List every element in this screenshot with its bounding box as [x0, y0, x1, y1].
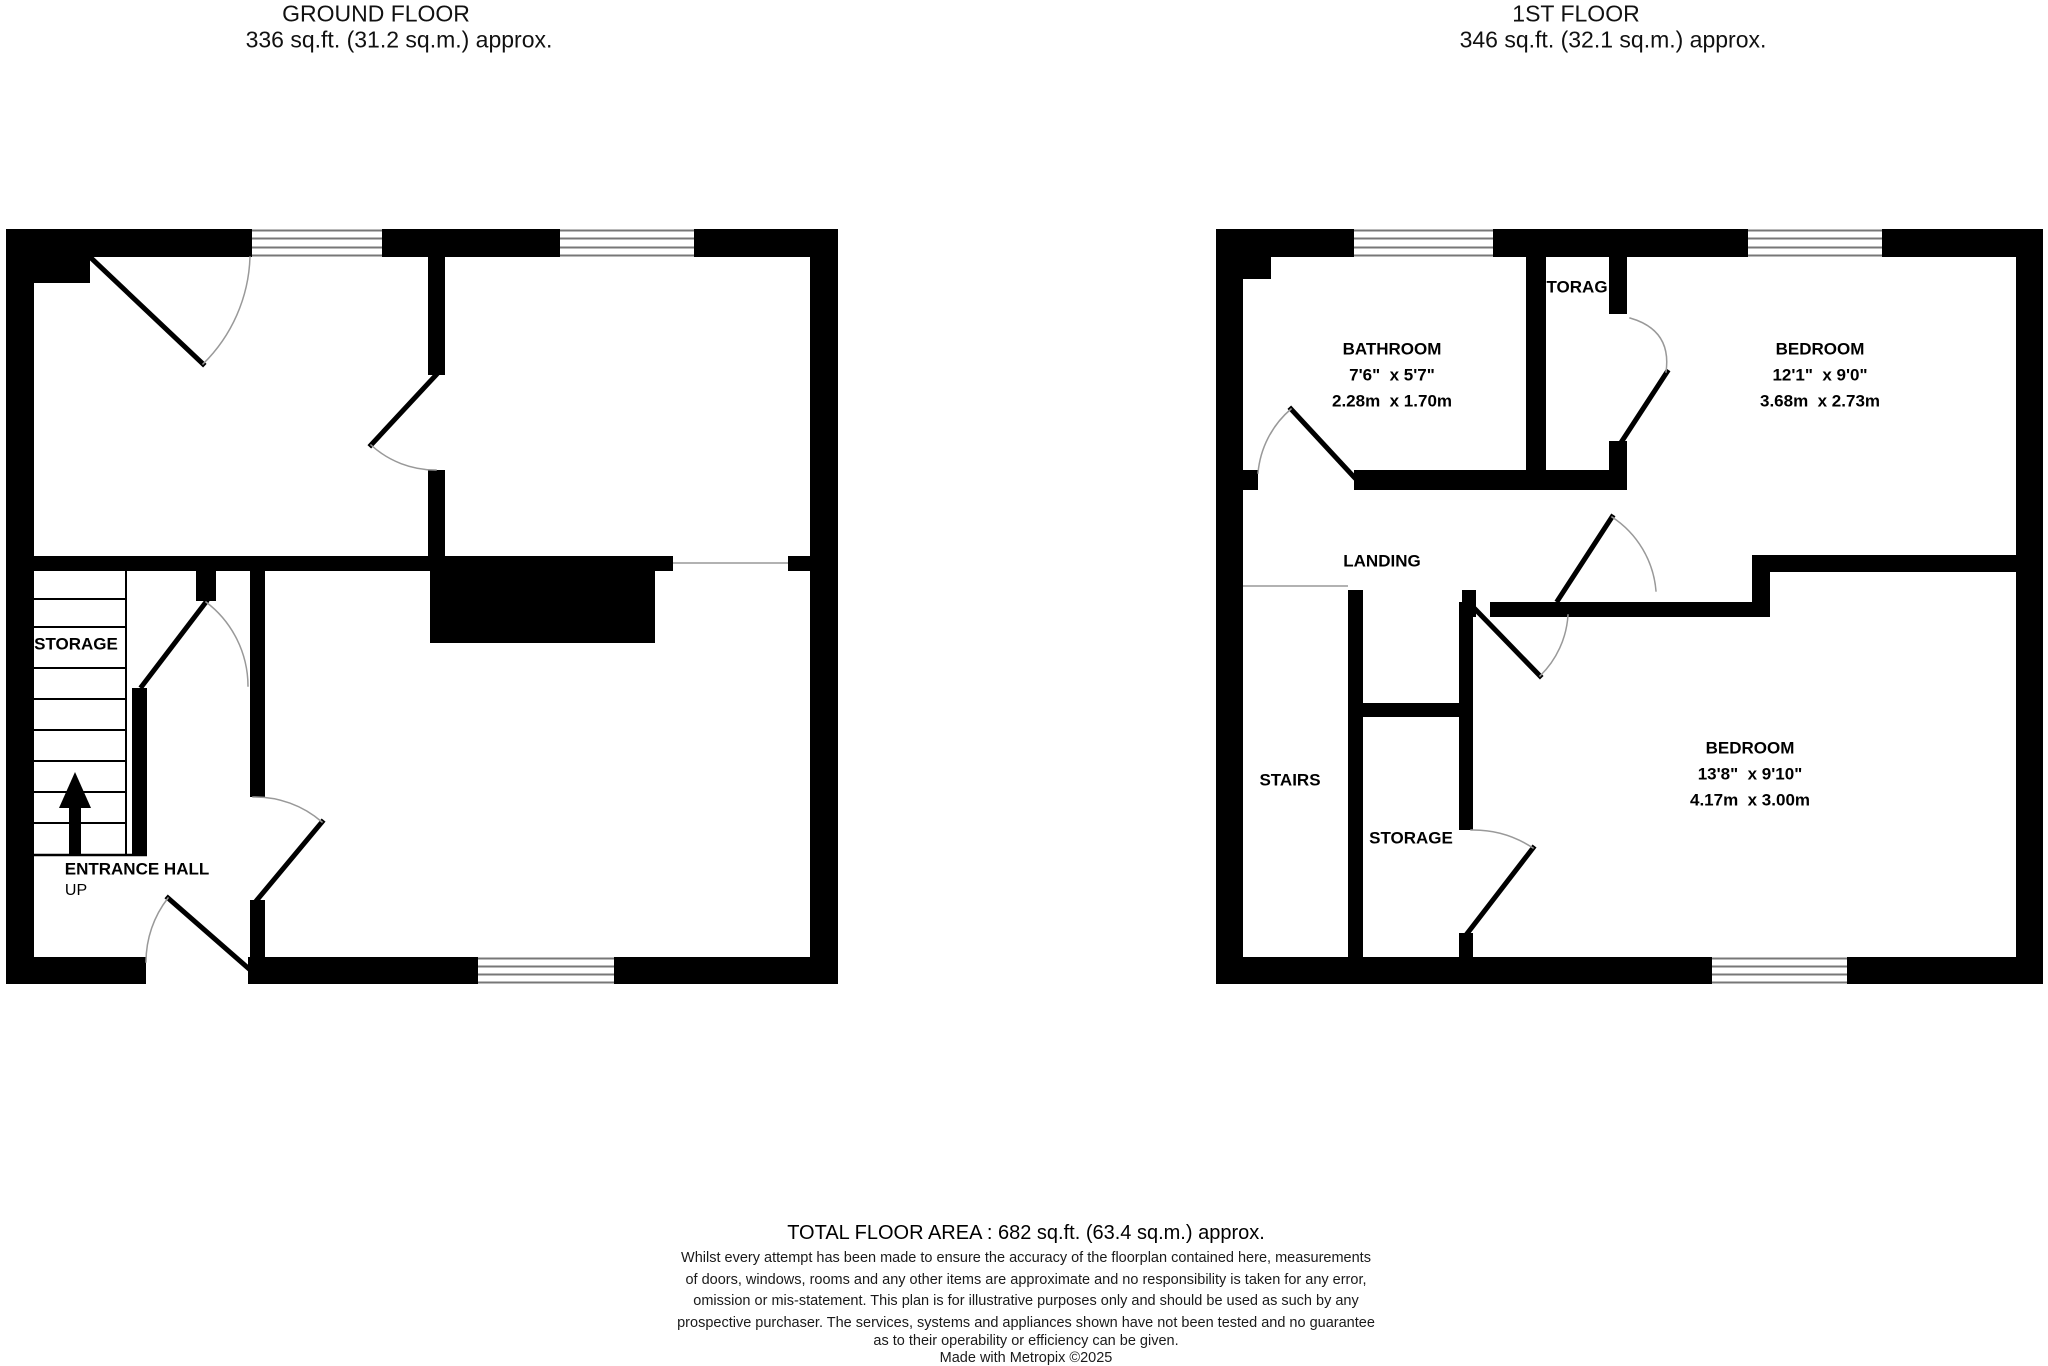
- ff-bedroom1-size-imperial: 12'1" x 9'0": [1772, 367, 1867, 384]
- ff-bedroom1-size-metric: 3.68m x 2.73m: [1760, 393, 1880, 410]
- ff-landing-label: LANDING: [1343, 553, 1420, 570]
- gf-room-divider-door: [371, 375, 436, 470]
- made-with-credit: Made with Metropix ©2025: [940, 1351, 1113, 1366]
- gf-hall-living-door: [253, 797, 322, 900]
- gf-chimney-breast: [430, 571, 655, 643]
- ff-window-top-right: [1748, 229, 1882, 257]
- gf-window-top-left: [252, 229, 382, 257]
- ff-storage-top-label: TORAG: [1546, 279, 1607, 296]
- gf-front-top-left-door: [90, 257, 250, 364]
- up-arrow-icon: [59, 772, 91, 855]
- ff-bathroom-door: [1258, 409, 1354, 477]
- ff-bedroom2-size-imperial: 13'8" x 9'10": [1698, 766, 1803, 783]
- disclaimer-line-1: Whilst every attempt has been made to en…: [681, 1251, 1371, 1266]
- ff-bedroom1-name: BEDROOM: [1776, 341, 1865, 358]
- gf-understairs-storage-door: [142, 602, 248, 686]
- ff-bathroom-size-metric: 2.28m x 1.70m: [1332, 393, 1452, 410]
- ff-bedroom2-size-metric: 4.17m x 3.00m: [1690, 792, 1810, 809]
- ff-window-top-left: [1354, 229, 1493, 257]
- gf-subtitle: 336 sq.ft. (31.2 sq.m.) approx.: [246, 29, 553, 52]
- total-floor-area: TOTAL FLOOR AREA : 682 sq.ft. (63.4 sq.m…: [787, 1223, 1265, 1243]
- gf-front-entrance-door: [146, 898, 248, 968]
- ff-interior-walls: [1238, 257, 2016, 957]
- floorplan-drawing: [0, 0, 2048, 1366]
- gf-stairs: [34, 571, 147, 855]
- ff-title: 1ST FLOOR: [1512, 3, 1639, 26]
- gf-title: GROUND FLOOR: [282, 3, 470, 26]
- gf-window-bottom: [478, 957, 614, 984]
- disclaimer-line-5: as to their operability or efficiency ca…: [873, 1334, 1178, 1349]
- ff-stairs-label: STAIRS: [1259, 772, 1320, 789]
- ff-bathroom-name: BATHROOM: [1343, 341, 1442, 358]
- gf-entrance-hall-label: ENTRANCE HALL: [65, 861, 210, 878]
- gf-window-top-right: [560, 229, 694, 257]
- ff-bedroom2-name: BEDROOM: [1706, 740, 1795, 757]
- floorplan-page: GROUND FLOOR 336 sq.ft. (31.2 sq.m.) app…: [0, 0, 2048, 1366]
- ff-bedroom2-door: [1476, 610, 1568, 676]
- ff-bedroom1-door: [1558, 517, 1656, 600]
- ff-subtitle: 346 sq.ft. (32.1 sq.m.) approx.: [1460, 29, 1767, 52]
- ff-storage-top-door: [1622, 318, 1667, 441]
- disclaimer-line-2: of doors, windows, rooms and any other i…: [685, 1273, 1366, 1288]
- ff-window-bottom: [1712, 957, 1847, 984]
- ff-storage-closet-door: [1466, 830, 1533, 935]
- gf-up-label: UP: [65, 883, 87, 899]
- ff-bathroom-size-imperial: 7'6" x 5'7": [1349, 367, 1435, 384]
- disclaimer-line-4: prospective purchaser. The services, sys…: [677, 1316, 1375, 1331]
- gf-storage-label: STORAGE: [34, 636, 118, 653]
- ff-storage-label: STORAGE: [1369, 830, 1453, 847]
- disclaimer-line-3: omission or mis-statement. This plan is …: [693, 1294, 1358, 1309]
